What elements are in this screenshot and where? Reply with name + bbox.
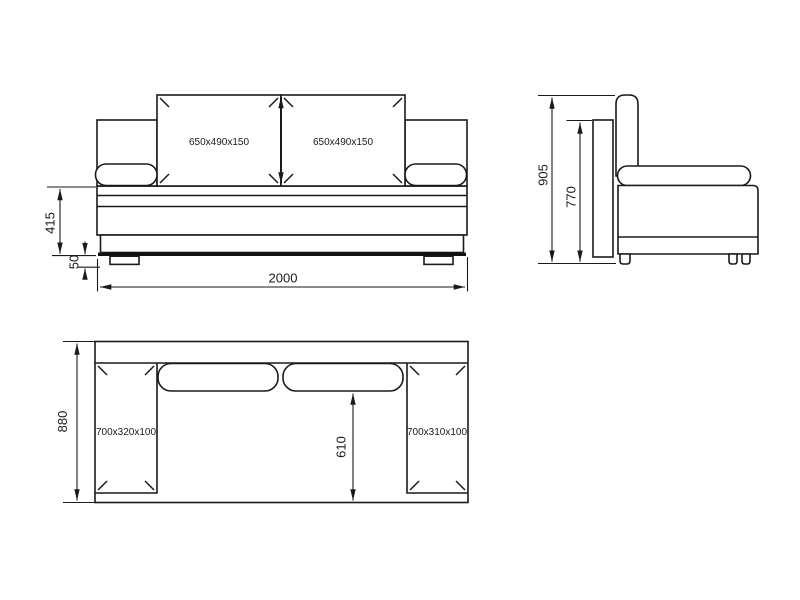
side-front-leg-1 — [729, 254, 737, 264]
side-back-leg — [620, 254, 630, 264]
side-body — [618, 186, 758, 255]
top-left-armrest-label: 700x320x100 — [96, 427, 156, 438]
front-cushion-left-label: 650x490x150 — [189, 137, 249, 148]
front-base — [101, 235, 464, 253]
dim-415-label: 415 — [43, 212, 58, 234]
side-backrest — [616, 95, 638, 176]
dim-50-label: 50 — [67, 255, 82, 269]
side-armrest-pillow — [618, 166, 751, 186]
top-seat-cushion-left — [158, 364, 278, 392]
drawing-canvas: 650x490x150 650x490x150 415 50 2000 — [0, 0, 800, 600]
dim-610-label: 610 — [334, 436, 349, 458]
top-view: 700x320x100 700x310x100 880 610 — [55, 342, 468, 503]
top-outline — [95, 342, 468, 503]
front-cushion-right-label: 650x490x150 — [313, 137, 373, 148]
top-right-armrest-label: 700x310x100 — [407, 427, 467, 438]
front-view: 650x490x150 650x490x150 415 50 2000 — [43, 95, 468, 292]
side-view: 905 770 — [536, 95, 759, 264]
dim-770-label: 770 — [564, 186, 579, 208]
dim-880-label: 880 — [55, 411, 70, 433]
front-right-leg — [424, 256, 453, 264]
technical-drawing-svg: 650x490x150 650x490x150 415 50 2000 — [0, 0, 800, 600]
dim-905-label: 905 — [536, 164, 551, 186]
front-left-leg — [110, 256, 139, 264]
front-left-armrest-pillow — [96, 164, 158, 186]
side-back-frame — [593, 120, 613, 257]
top-seat-cushion-right — [283, 364, 403, 392]
dim-2000-label: 2000 — [269, 271, 298, 286]
side-front-leg-2 — [742, 254, 750, 264]
front-right-armrest-pillow — [405, 164, 467, 186]
front-seat-body — [97, 186, 467, 235]
